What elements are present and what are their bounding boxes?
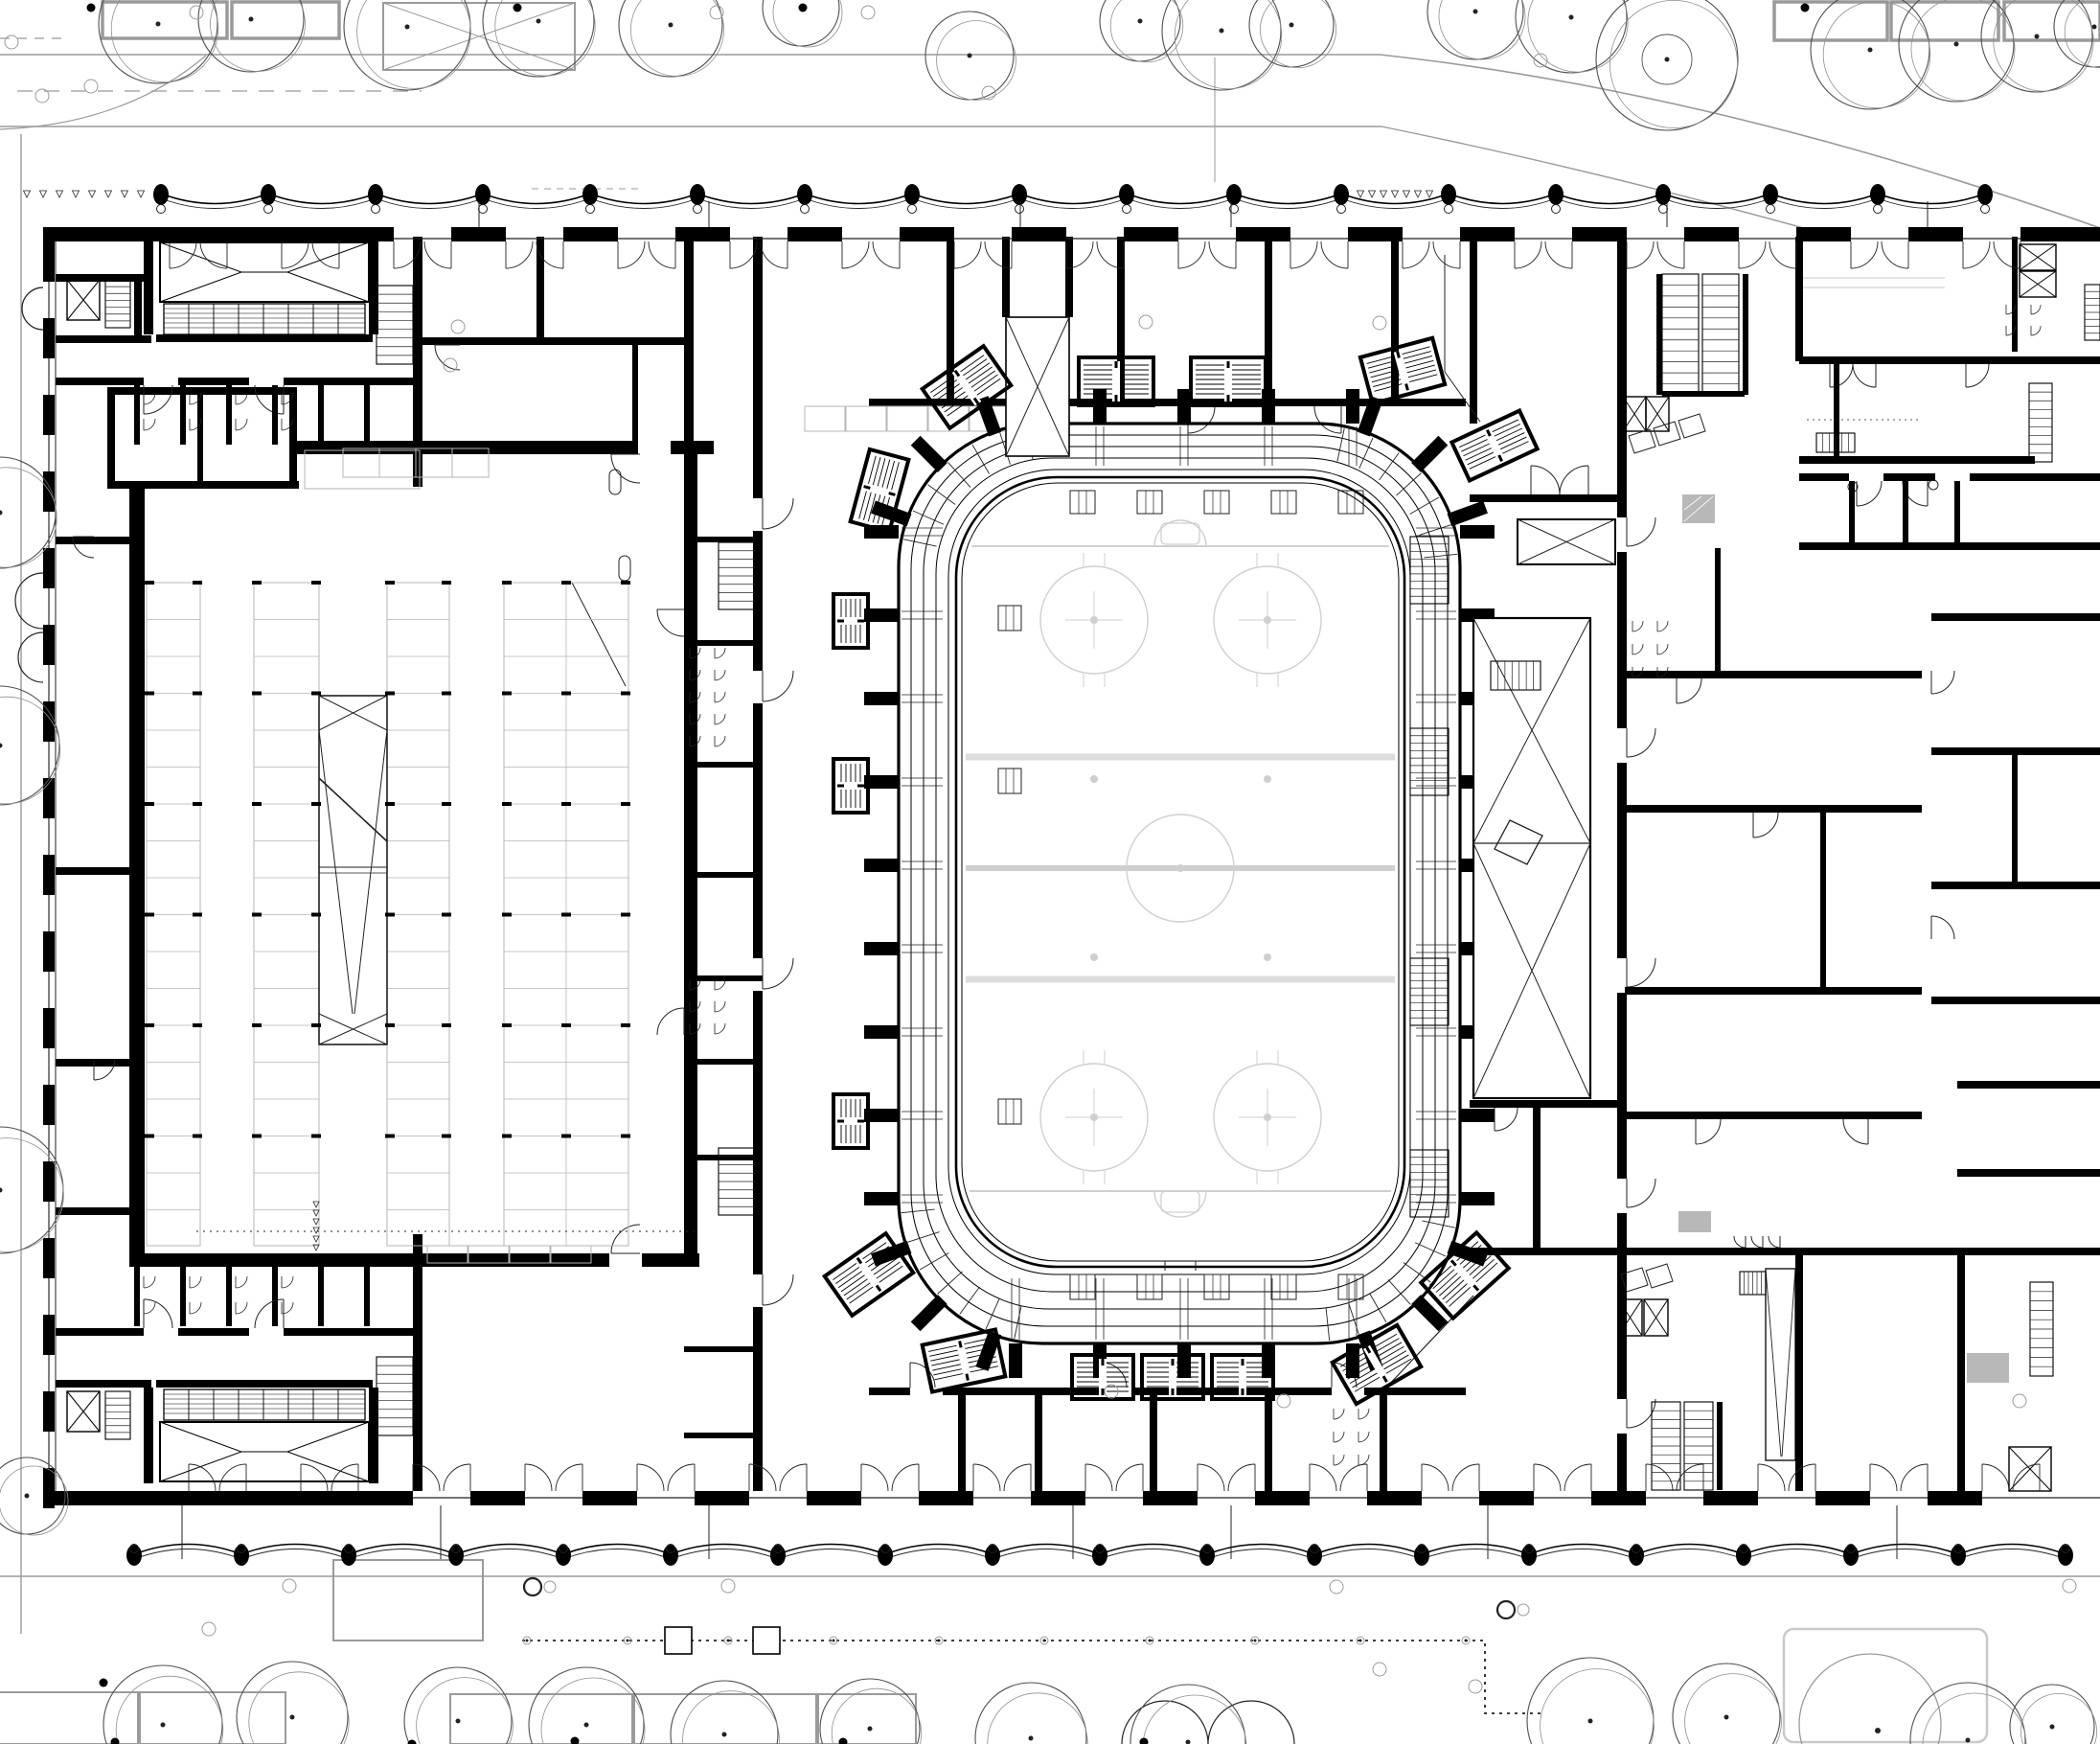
floor-plan-svg [0, 0, 2100, 1744]
site-arrows [24, 191, 1433, 197]
canopy-top [153, 184, 1993, 214]
pavilion [1473, 618, 1590, 1098]
canopy-bottom [126, 1545, 2073, 1567]
ramp [1006, 317, 1069, 456]
arena-floor-plan [0, 0, 2100, 1744]
